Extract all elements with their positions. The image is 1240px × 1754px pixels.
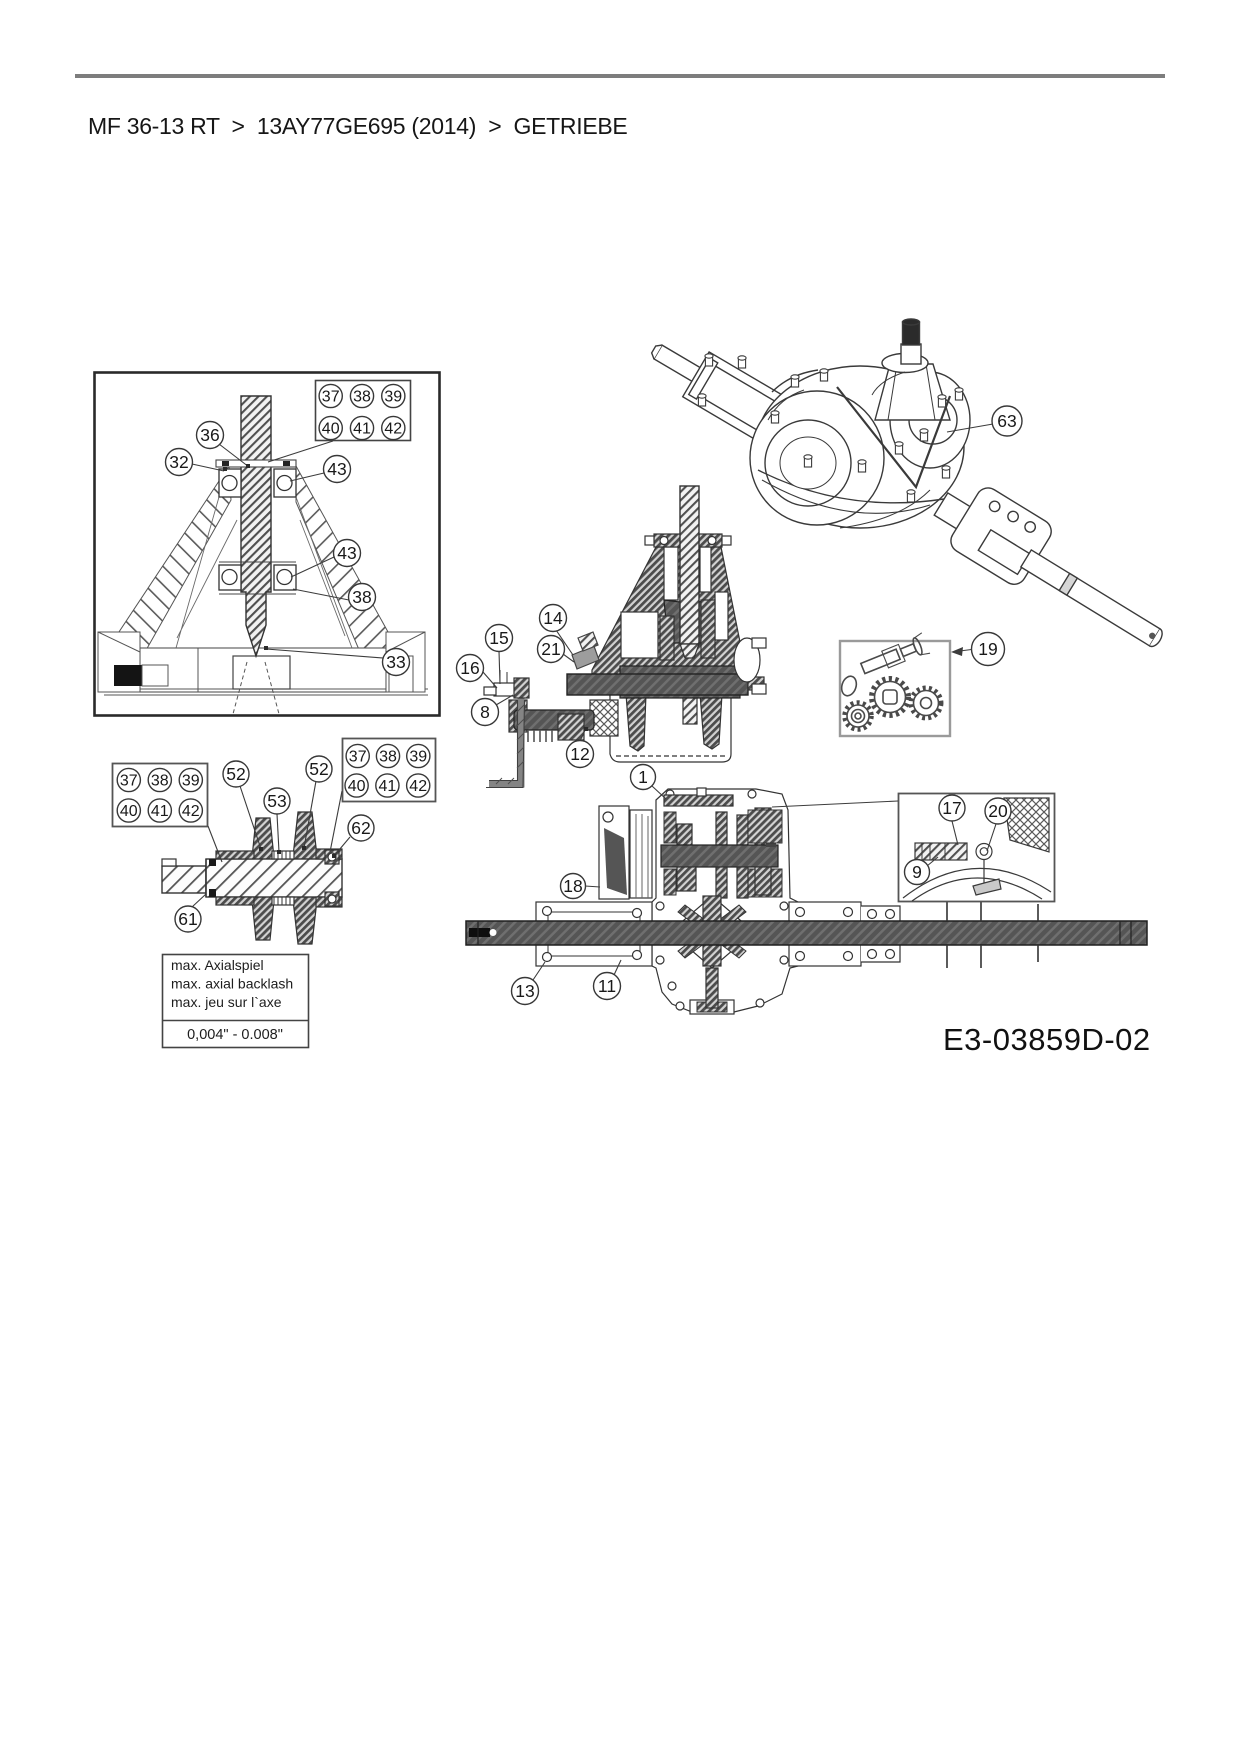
svg-text:43: 43 <box>327 459 346 479</box>
svg-text:11: 11 <box>598 976 616 996</box>
svg-text:37: 37 <box>120 773 138 790</box>
svg-text:40: 40 <box>322 421 340 438</box>
svg-text:0,004" - 0.008": 0,004" - 0.008" <box>187 1027 283 1043</box>
svg-text:52: 52 <box>226 764 245 784</box>
svg-text:32: 32 <box>169 452 188 472</box>
svg-text:19: 19 <box>978 639 997 659</box>
svg-text:40: 40 <box>120 803 138 820</box>
svg-text:42: 42 <box>182 803 200 820</box>
svg-text:12: 12 <box>570 744 589 764</box>
svg-text:1: 1 <box>638 767 648 787</box>
svg-text:40: 40 <box>348 778 366 795</box>
svg-text:17: 17 <box>942 798 961 818</box>
svg-text:38: 38 <box>151 773 169 790</box>
svg-text:16: 16 <box>460 658 479 678</box>
svg-text:39: 39 <box>409 749 427 766</box>
svg-text:21: 21 <box>541 639 560 659</box>
svg-text:41: 41 <box>379 778 397 795</box>
svg-text:63: 63 <box>997 411 1016 431</box>
svg-text:41: 41 <box>353 421 371 438</box>
svg-text:52: 52 <box>309 759 328 779</box>
svg-text:39: 39 <box>182 773 200 790</box>
svg-text:62: 62 <box>351 818 370 838</box>
svg-text:13: 13 <box>515 981 534 1001</box>
svg-text:38: 38 <box>379 749 397 766</box>
svg-text:15: 15 <box>489 628 508 648</box>
svg-text:14: 14 <box>543 608 563 628</box>
svg-text:8: 8 <box>480 702 490 722</box>
svg-text:38: 38 <box>352 587 371 607</box>
svg-text:36: 36 <box>200 425 219 445</box>
svg-text:37: 37 <box>349 749 367 766</box>
svg-text:max. jeu sur l`axe: max. jeu sur l`axe <box>171 994 282 1010</box>
svg-text:61: 61 <box>178 909 197 929</box>
svg-text:max. axial backlash: max. axial backlash <box>171 976 293 992</box>
svg-text:41: 41 <box>151 803 169 820</box>
svg-text:max. Axialspiel: max. Axialspiel <box>171 957 264 973</box>
svg-text:53: 53 <box>267 791 286 811</box>
svg-text:43: 43 <box>337 543 356 563</box>
svg-text:39: 39 <box>384 389 402 406</box>
svg-text:18: 18 <box>563 876 582 896</box>
svg-text:42: 42 <box>384 421 402 438</box>
svg-text:38: 38 <box>353 389 371 406</box>
svg-text:42: 42 <box>409 778 427 795</box>
svg-text:37: 37 <box>322 389 340 406</box>
svg-text:20: 20 <box>988 801 1008 821</box>
svg-text:9: 9 <box>912 862 922 882</box>
svg-text:33: 33 <box>386 652 405 672</box>
